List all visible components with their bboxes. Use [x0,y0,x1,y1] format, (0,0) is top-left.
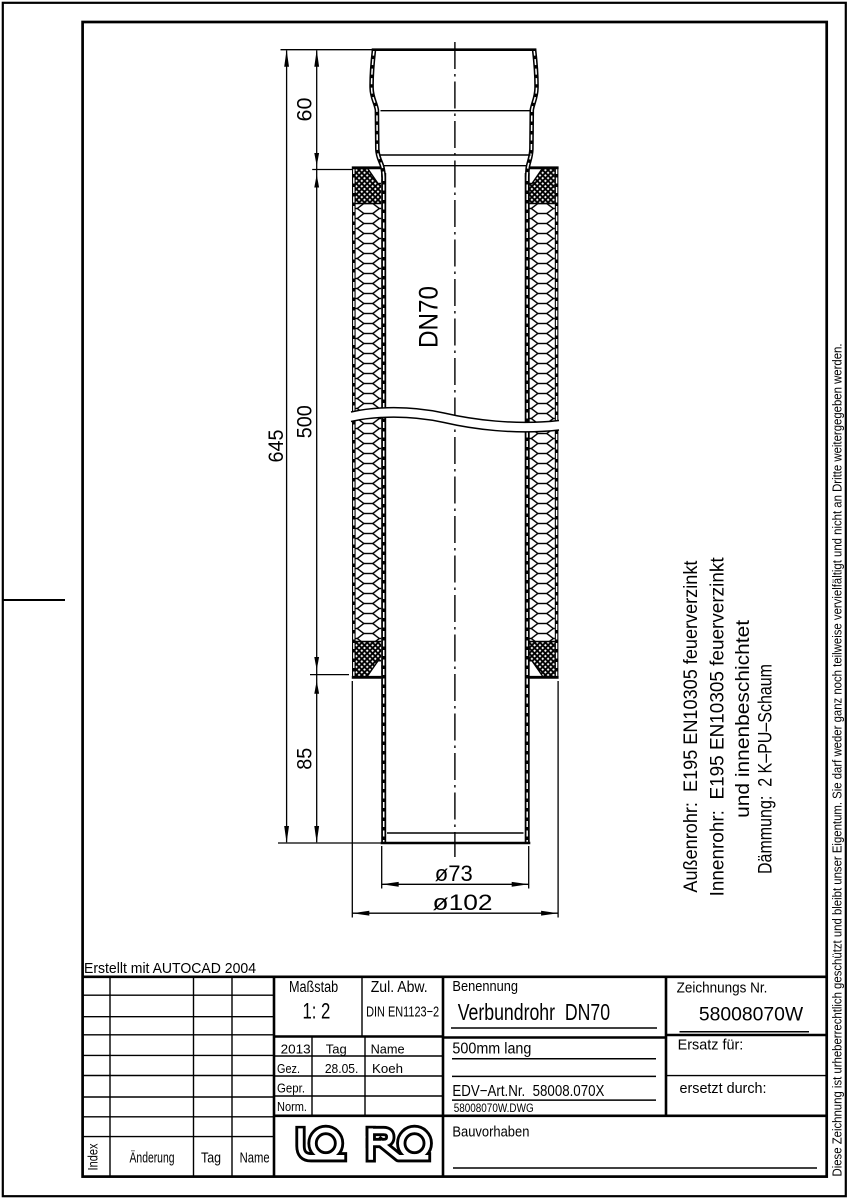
svg-text:Index: Index [86,1143,101,1170]
svg-text:Bauvorhaben: Bauvorhaben [452,1124,529,1140]
svg-text:Maßstab: Maßstab [289,979,338,996]
svg-text:DIN EN1123−2: DIN EN1123−2 [366,1003,439,1020]
svg-text:2013: 2013 [281,1042,311,1057]
svg-text:Name: Name [371,1042,405,1057]
svg-text:500mm lang: 500mm lang [452,1041,531,1058]
svg-text:Ersatz für:: Ersatz für: [678,1038,744,1054]
svg-text:Verbundrohr DN70: Verbundrohr DN70 [458,999,610,1025]
svg-text:58008070W: 58008070W [699,1003,804,1025]
svg-text:Tag: Tag [326,1042,347,1057]
svg-text:Name: Name [240,1150,270,1167]
svg-text:Erstellt mit AUTOCAD 2004: Erstellt mit AUTOCAD 2004 [84,960,256,977]
svg-text:Koeh: Koeh [372,1061,403,1076]
svg-text:und innenbeschichtet: und innenbeschichtet [732,619,754,818]
svg-text:DN70: DN70 [414,286,444,348]
svg-text:ersetzt durch:: ersetzt durch: [680,1081,767,1097]
svg-text:Gepr.: Gepr. [277,1080,305,1095]
svg-text:ø73: ø73 [435,861,473,886]
svg-text:Außenrohr: E195 EN10305 feuer: Außenrohr: E195 EN10305 feuerverzinkt [680,560,702,893]
svg-text:28.05.: 28.05. [325,1061,359,1076]
svg-text:Diese Zeichnung ist urheberrec: Diese Zeichnung ist urheberrechtlich ges… [830,344,844,1177]
svg-text:58008070W.DWG: 58008070W.DWG [454,1101,534,1115]
svg-text:645: 645 [264,429,288,462]
svg-text:Tag: Tag [201,1150,221,1167]
svg-text:60: 60 [292,98,316,122]
svg-text:1: 2: 1: 2 [302,999,330,1024]
svg-text:Gez.: Gez. [277,1061,300,1076]
svg-text:500: 500 [292,405,316,438]
svg-text:Benennung: Benennung [452,978,518,995]
svg-text:EDV−Art.Nr. 58008.070X: EDV−Art.Nr. 58008.070X [452,1083,604,1100]
svg-text:Zul. Abw.: Zul. Abw. [371,979,428,996]
svg-text:Zeichnungs Nr.: Zeichnungs Nr. [677,980,768,996]
svg-text:Dämmung: 2 K–PU–Schaum: Dämmung: 2 K–PU–Schaum [755,664,777,874]
svg-text:Innenrohr: E195 EN10305 feuer: Innenrohr: E195 EN10305 feuerverzinkt [707,557,729,897]
svg-text:Norm.: Norm. [277,1099,307,1114]
svg-text:ø102: ø102 [433,890,493,915]
svg-text:Änderung: Änderung [130,1150,175,1167]
svg-text:85: 85 [292,748,316,770]
